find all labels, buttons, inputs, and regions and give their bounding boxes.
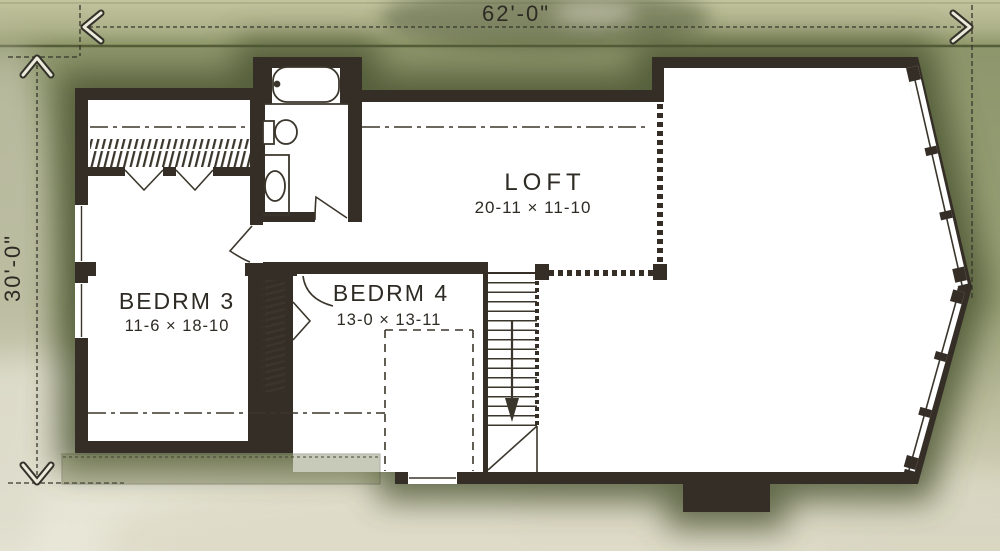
landing-floor	[543, 272, 664, 472]
bathtub-fixture	[273, 67, 339, 102]
bedrm4-size-label: 13-0 × 13-11	[337, 311, 442, 329]
tub-faucet-icon	[275, 82, 280, 87]
bedrm3-label: BEDRM 3	[119, 288, 235, 314]
bathroom-door-opening	[315, 212, 348, 222]
loft-size-label: 20-11 × 11-10	[475, 198, 592, 217]
bedrm4-label: BEDRM 4	[333, 280, 449, 306]
toilet-fixture	[263, 120, 297, 144]
bedrm3-size-label: 11-6 × 18-10	[125, 317, 230, 335]
railing-post	[653, 264, 667, 280]
deck-below	[62, 454, 380, 484]
hall-floor	[252, 222, 362, 262]
bedrm3-door-opening	[247, 225, 263, 263]
loft-label: LOFT	[504, 169, 585, 196]
overall-width-label: 62'-0"	[482, 1, 550, 26]
floor-plan-page: 62'-0" 30'-0"	[0, 0, 1000, 551]
bedrm4-closet-rod	[262, 280, 285, 392]
great-room-floor	[664, 68, 958, 472]
floor-plan-canvas: 62'-0" 30'-0"	[0, 0, 1000, 551]
overall-depth-label: 30'-0"	[0, 234, 25, 302]
bedrm3-closet-rod	[90, 139, 250, 167]
